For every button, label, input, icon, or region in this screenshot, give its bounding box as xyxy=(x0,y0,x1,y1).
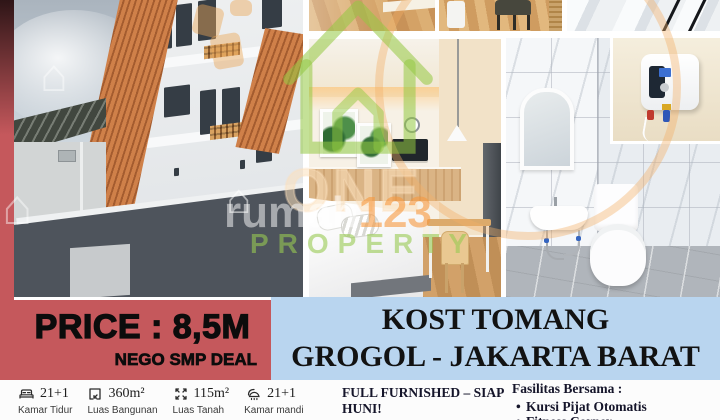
house-logo-watermark xyxy=(268,0,448,158)
facilities-list: Kursi Pijat Otomatis Fitness Corner xyxy=(512,399,712,420)
stat-value: 21+1 xyxy=(40,386,69,402)
stat-top: 21+1 xyxy=(18,386,72,402)
stat-label: Kamar Tidur xyxy=(18,405,72,416)
stat-top: 360m² xyxy=(87,386,157,402)
stats-row: 21+1 Kamar Tidur 360m² Luas Bangunan xyxy=(18,386,304,416)
stair-railing xyxy=(685,0,708,31)
stat-land-area: 115m² Luas Tanah xyxy=(173,386,230,416)
features-section: FULL FURNISHED – SIAP HUNI! Smart TV 32 … xyxy=(342,385,510,420)
footer-bar: 21+1 Kamar Tidur 360m² Luas Bangunan xyxy=(0,380,720,420)
listing-title-line1: KOST TOMANG xyxy=(271,303,720,337)
stat-bedrooms: 21+1 Kamar Tidur xyxy=(18,386,72,416)
property-listing-flyer: ⌂ ⌂ ⌂ ONE rumah123 PROPERTY PRICE : 8,5M… xyxy=(0,0,720,420)
chair-leg xyxy=(445,263,448,293)
building-window xyxy=(176,3,192,47)
stat-building-area: 360m² Luas Bangunan xyxy=(87,386,157,416)
brand-blob-watermark xyxy=(209,32,244,71)
price-text: PRICE : 8,5M xyxy=(14,308,271,347)
price-box: PRICE : 8,5M NEGO SMP DEAL xyxy=(14,300,271,380)
title-box: KOST TOMANG GROGOL - JAKARTA BARAT xyxy=(271,297,720,380)
facilities-section: Fasilitas Bersama : Kursi Pijat Otomatis… xyxy=(512,381,712,420)
brand-word-watermark: PROPERTY xyxy=(250,228,476,260)
brand-blob-watermark xyxy=(230,0,252,16)
house-icon: ⌂ xyxy=(40,52,68,98)
stat-label: Luas Bangunan xyxy=(87,405,157,416)
stat-label: Luas Tanah xyxy=(173,405,230,416)
floorplan-icon xyxy=(87,386,103,402)
stat-bathrooms: 21+1 Kamar mandi xyxy=(244,386,303,416)
stat-value: 115m² xyxy=(194,386,230,402)
land-area-icon xyxy=(173,386,189,402)
house-icon: ⌂ xyxy=(2,182,32,232)
bed-icon xyxy=(18,386,35,402)
facilities-heading: Fasilitas Bersama : xyxy=(512,381,712,397)
building-gray-panel xyxy=(164,84,190,117)
stat-value: 360m² xyxy=(108,386,144,402)
listing-title-line2: GROGOL - JAKARTA BARAT xyxy=(271,340,720,374)
stat-top: 115m² xyxy=(173,386,230,402)
stat-value: 21+1 xyxy=(267,386,296,402)
facility-item: Fitness Corner xyxy=(512,414,712,420)
shower-icon xyxy=(244,386,262,402)
chair-leg xyxy=(461,263,464,293)
pipe-clamp xyxy=(576,236,581,241)
building-lamp xyxy=(240,160,245,170)
price-nego-text: NEGO SMP DEAL xyxy=(115,350,257,370)
building-pillar xyxy=(70,244,130,297)
stat-label: Kamar mandi xyxy=(244,405,303,416)
toilet-bowl xyxy=(590,224,646,286)
facility-item: Kursi Pijat Otomatis xyxy=(512,399,712,414)
building-lamp xyxy=(174,168,179,177)
stat-top: 21+1 xyxy=(244,386,303,402)
features-heading: FULL FURNISHED – SIAP HUNI! xyxy=(342,385,510,417)
left-margin-shade xyxy=(0,0,14,150)
ac-unit xyxy=(58,150,76,162)
